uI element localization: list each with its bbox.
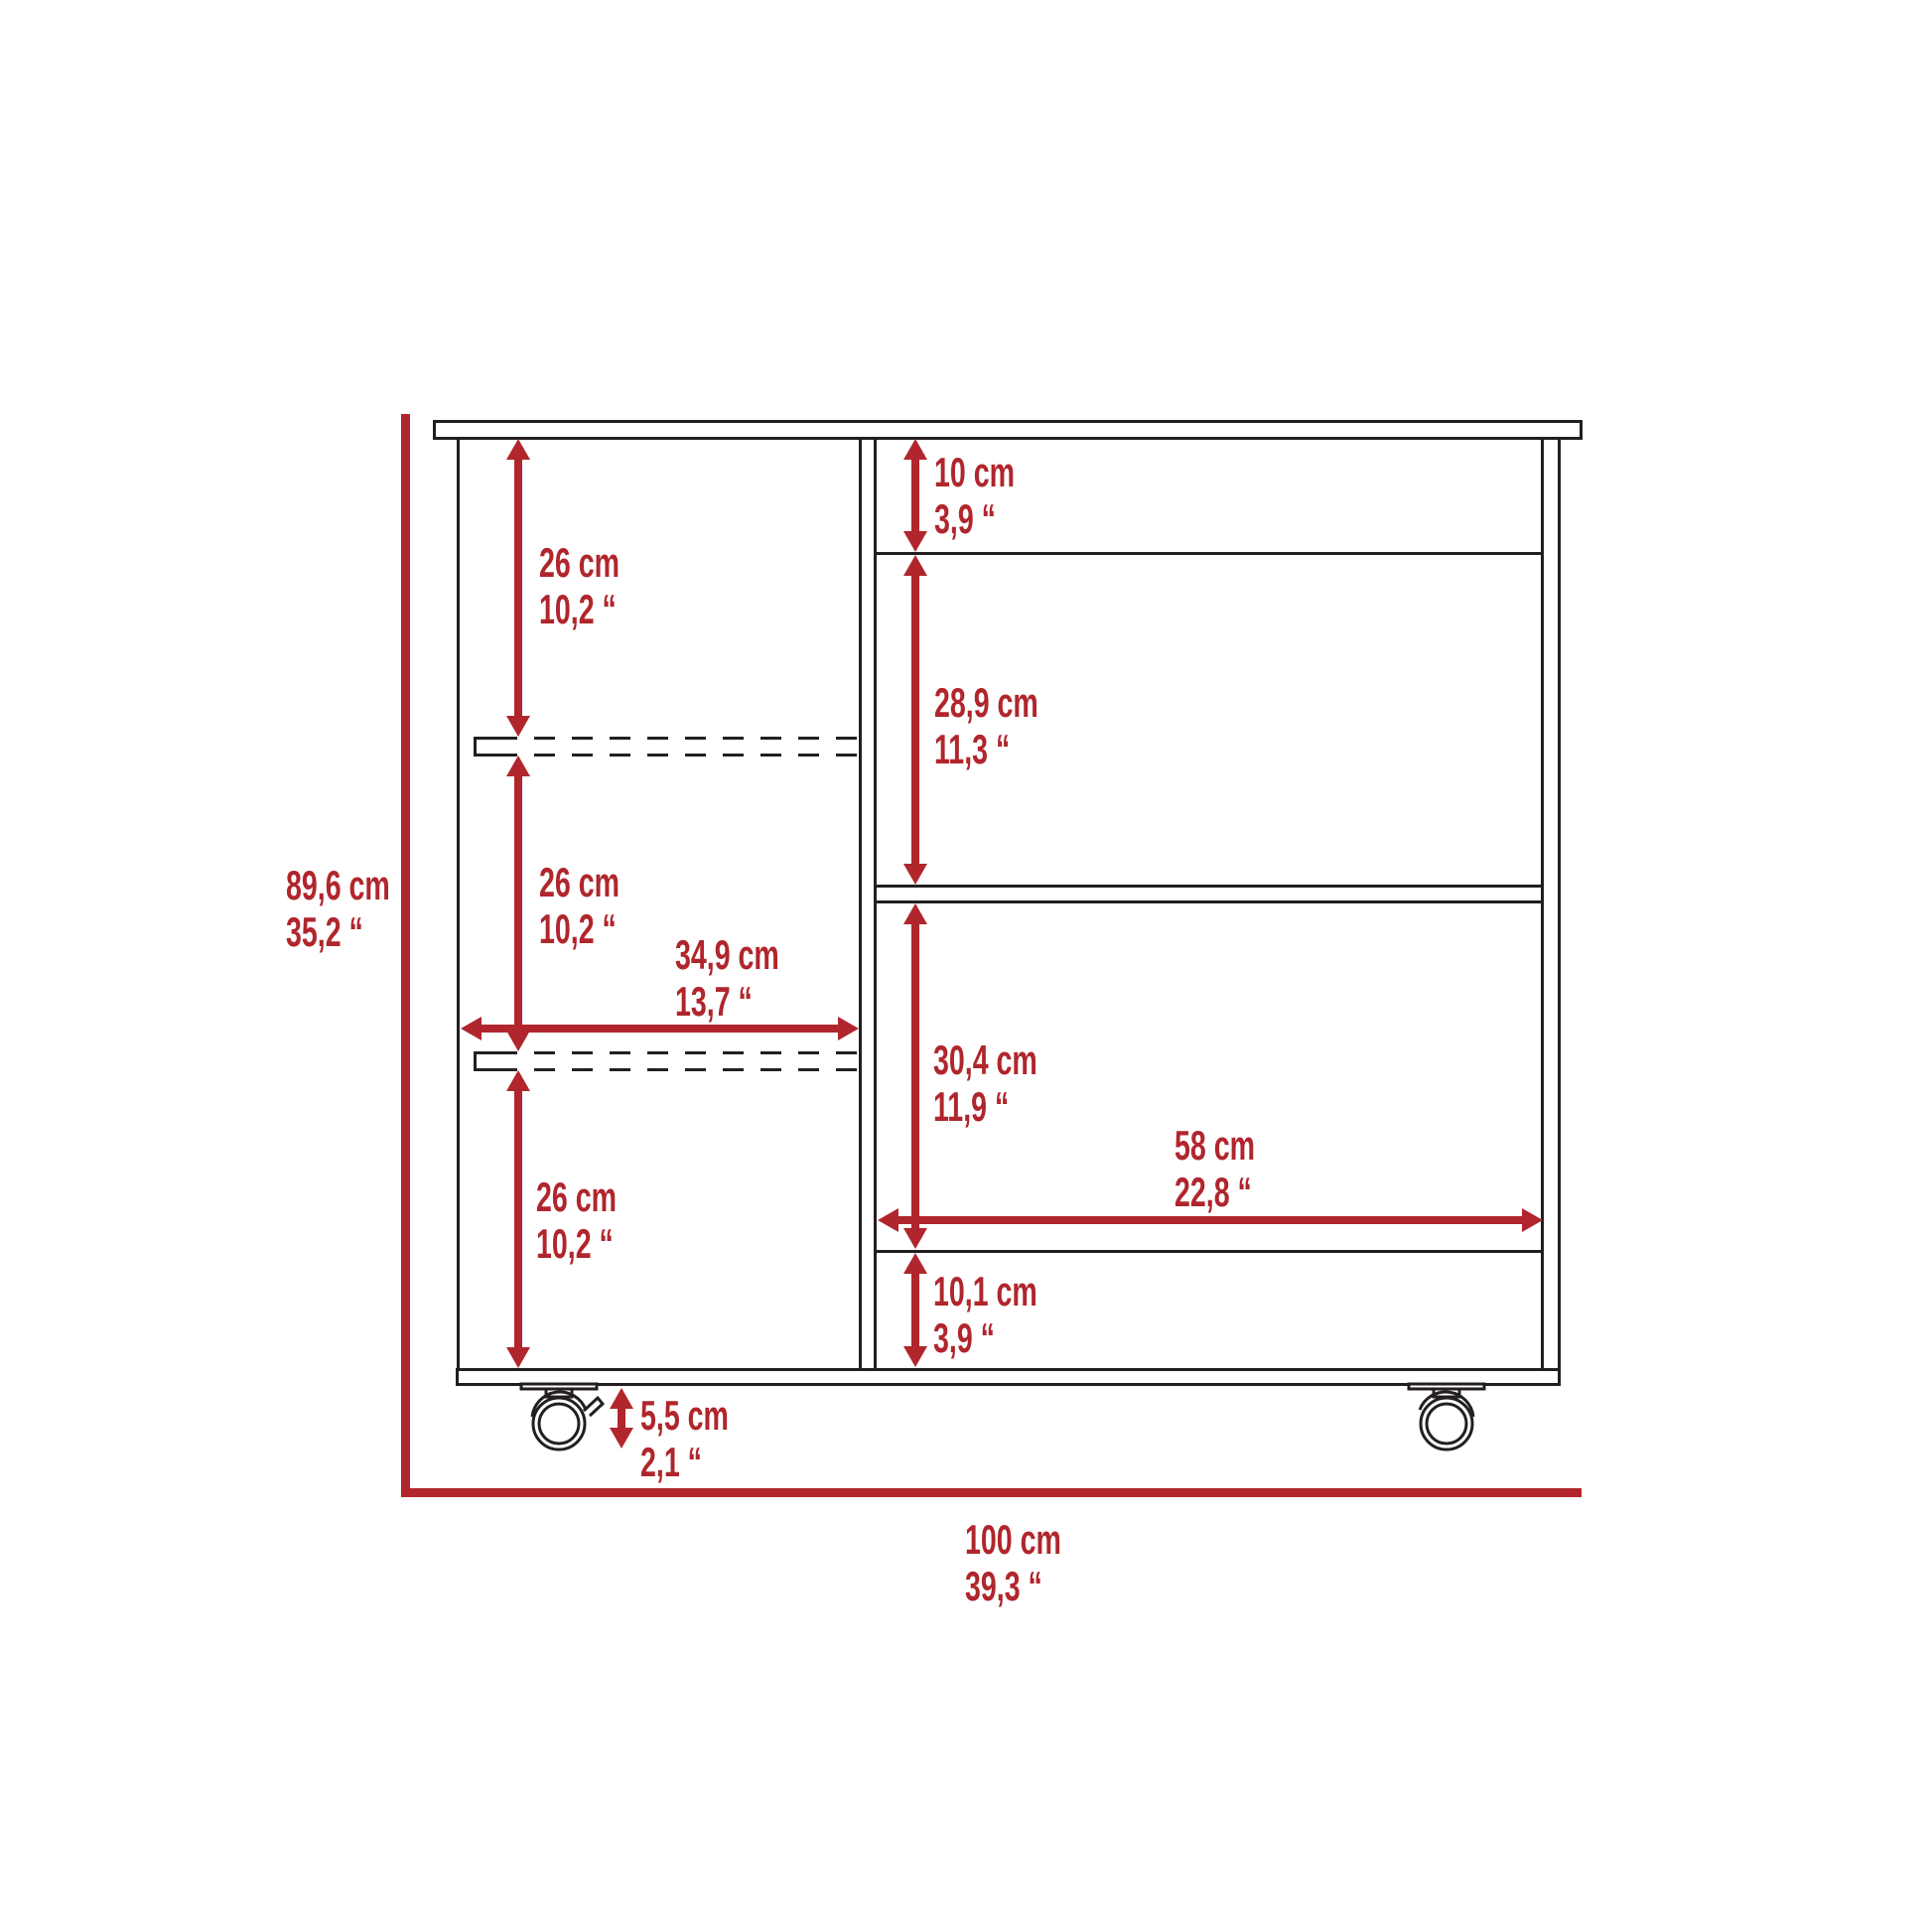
dim-inch-value: 10,2 “ [539,586,617,632]
dim-inch-value: 22,8 “ [1174,1169,1252,1215]
bottle-slot-2-cap [476,1053,497,1070]
dim-cm-value: 58 cm [1174,1122,1255,1169]
caster-left-icon [521,1384,603,1449]
dimension-label-overall-height: 89,6 cm 35,2 “ [286,862,390,955]
dim-cm-value: 26 cm [539,539,620,586]
overall-width-line [401,1488,1582,1497]
dim-inch-value: 11,3 “ [934,726,1010,772]
dimension-label-right-top-gap: 10 cm 3,9 “ [934,449,1015,542]
dim-cm-value: 5,5 cm [640,1392,729,1439]
bottom-panel [458,1370,1560,1385]
dim-inch-value: 13,7 “ [675,978,753,1025]
bottle-slot-1-cap [476,739,497,756]
dim-cm-value: 30,4 cm [933,1036,1037,1083]
arrow-caster-height [610,1388,633,1449]
caster-right-icon [1409,1384,1484,1449]
dim-cm-value: 28,9 cm [934,679,1038,726]
dim-cm-value: 26 cm [539,859,620,905]
dimension-label-right-bottom-gap: 10,1 cm 3,9 “ [933,1268,1037,1361]
dim-inch-value: 35,2 “ [286,908,363,955]
dimension-label-right-shelf-lower: 30,4 cm 11,9 “ [933,1036,1037,1130]
dim-cm-value: 89,6 cm [286,862,390,908]
arrow-right-lower [903,903,927,1249]
dim-inch-value: 3,9 “ [934,495,996,542]
dimension-label-left-shelf-top: 26 cm 10,2 “ [539,539,620,632]
dim-cm-value: 26 cm [536,1173,617,1220]
arrow-left-bottom [506,1070,530,1368]
arrow-right-bottom-gap [903,1253,927,1367]
brake-lever-icon [584,1398,603,1416]
dim-inch-value: 2,1 “ [640,1439,702,1485]
right-shelf-middle [876,887,1543,902]
arrow-left-middle [506,756,530,1051]
dimension-diagram: 26 cm 10,2 “ 10 cm 3,9 “ 28,9 cm 11,3 “ … [0,0,1932,1932]
dimension-label-right-shelf-upper: 28,9 cm 11,3 “ [934,679,1038,772]
arrow-right-upper [903,555,927,885]
dim-inch-value: 10,2 “ [536,1220,614,1267]
arrow-left-top [506,439,530,737]
dim-inch-value: 39,3 “ [965,1563,1042,1609]
dim-cm-value: 34,9 cm [675,931,779,978]
dimension-label-left-section-width: 34,9 cm 13,7 “ [675,931,779,1025]
dimension-label-caster-height: 5,5 cm 2,1 “ [640,1392,729,1485]
dim-cm-value: 10,1 cm [933,1268,1037,1314]
dim-inch-value: 3,9 “ [933,1314,995,1361]
top-panel [435,422,1582,439]
dim-cm-value: 10 cm [934,449,1015,495]
arrow-right-top-gap [903,439,927,552]
dim-inch-value: 11,9 “ [933,1083,1009,1130]
dimension-label-right-section-width: 58 cm 22,8 “ [1174,1122,1255,1215]
dimension-label-left-shelf-middle: 26 cm 10,2 “ [539,859,620,952]
dim-inch-value: 10,2 “ [539,905,617,952]
cabinet-line-drawing [0,0,1932,1932]
dim-cm-value: 100 cm [965,1516,1061,1563]
dimension-label-overall-width: 100 cm 39,3 “ [965,1516,1061,1609]
dimension-label-left-shelf-bottom: 26 cm 10,2 “ [536,1173,617,1267]
overall-height-line [401,414,410,1497]
